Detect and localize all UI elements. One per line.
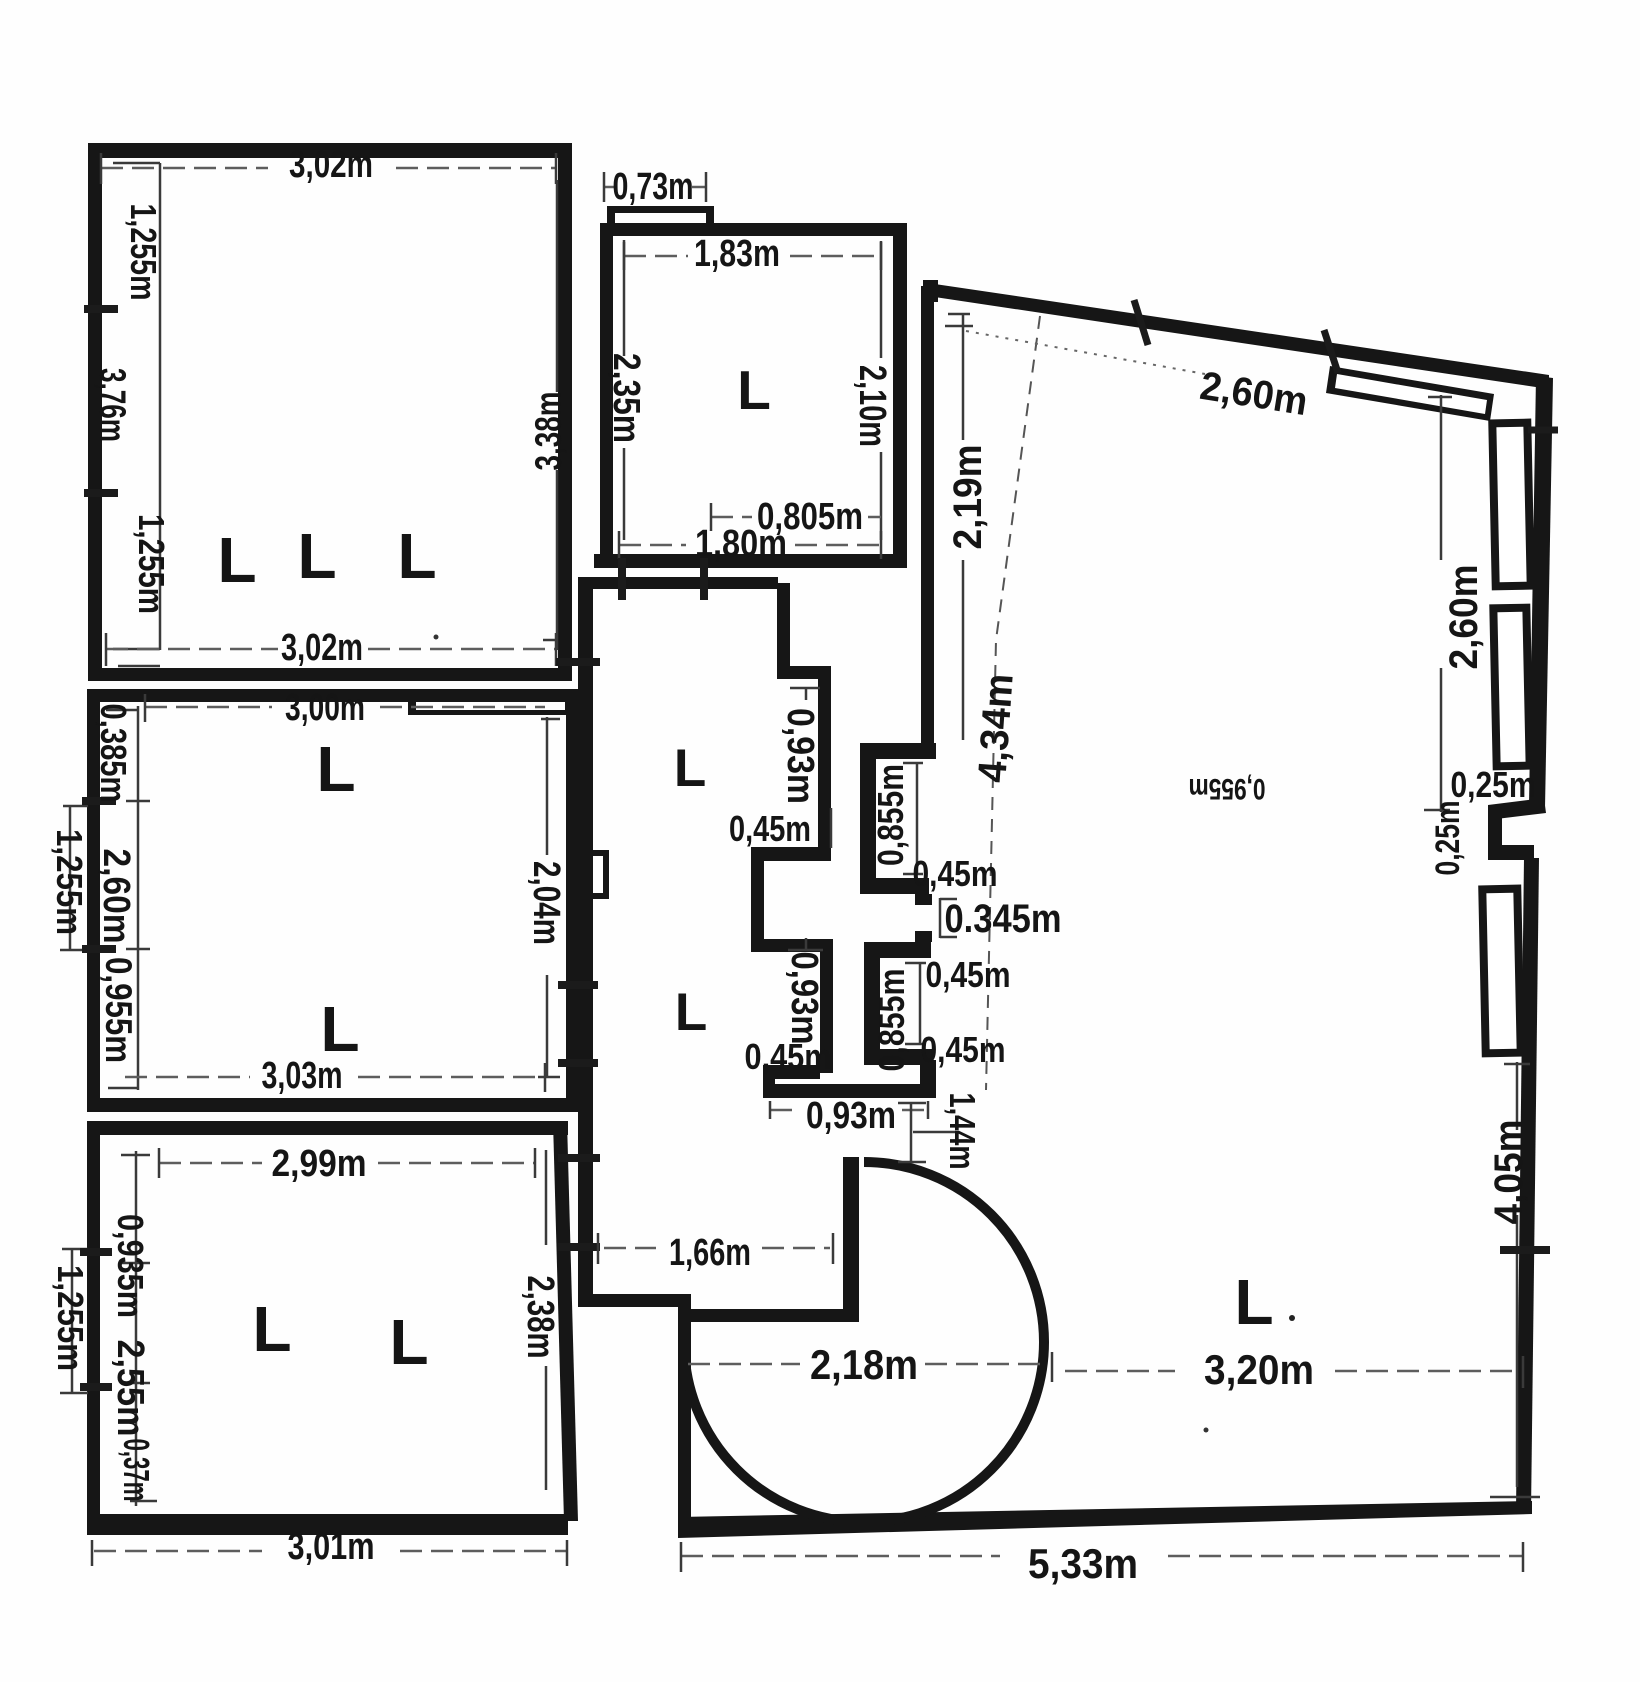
svg-text:0,955m: 0,955m xyxy=(98,957,139,1063)
svg-text:1,44m: 1,44m xyxy=(942,1093,983,1170)
svg-text:L: L xyxy=(320,993,359,1065)
svg-text:2,35m: 2,35m xyxy=(605,353,647,443)
svg-text:L: L xyxy=(297,520,336,592)
svg-text:2,19m: 2,19m xyxy=(946,445,990,550)
svg-text:L: L xyxy=(397,520,436,592)
svg-text:3,02m: 3,02m xyxy=(289,144,373,186)
svg-text:3,20m: 3,20m xyxy=(1204,1346,1314,1393)
svg-text:0,45m: 0,45m xyxy=(913,853,998,894)
svg-text:1,255m: 1,255m xyxy=(49,829,90,935)
svg-text:3,02m: 3,02m xyxy=(281,627,363,669)
svg-text:L: L xyxy=(217,524,256,596)
svg-text:0,385m: 0,385m xyxy=(93,704,134,803)
svg-text:0,855m: 0,855m xyxy=(871,969,912,1072)
svg-text:L: L xyxy=(674,739,706,798)
svg-text:1,255m: 1,255m xyxy=(131,514,172,614)
svg-text:3,76m: 3,76m xyxy=(92,368,133,442)
svg-text:0,93m: 0,93m xyxy=(783,952,825,1045)
svg-text:0,45m: 0,45m xyxy=(729,808,811,849)
svg-text:0,955m: 0,955m xyxy=(1189,772,1266,805)
svg-text:0,935m: 0,935m xyxy=(110,1214,151,1318)
svg-text:0,93m: 0,93m xyxy=(806,1095,896,1137)
svg-text:2,18m: 2,18m xyxy=(810,1341,918,1388)
svg-text:0,73m: 0,73m xyxy=(613,166,694,208)
svg-text:0,45m: 0,45m xyxy=(745,1036,832,1077)
svg-text:2,10m: 2,10m xyxy=(851,365,893,447)
svg-text:2,38m: 2,38m xyxy=(519,1276,561,1359)
svg-text:5,33m: 5,33m xyxy=(1028,1540,1138,1587)
svg-text:0,45m: 0,45m xyxy=(926,954,1011,995)
svg-text:L: L xyxy=(252,1293,291,1365)
svg-text:2,99m: 2,99m xyxy=(272,1143,367,1185)
svg-text:L: L xyxy=(389,1306,428,1378)
svg-text:2,60m: 2,60m xyxy=(95,849,137,944)
svg-text:4,05m: 4,05m xyxy=(1487,1120,1531,1225)
svg-text:2,04m: 2,04m xyxy=(525,861,567,945)
svg-text:1,255m: 1,255m xyxy=(50,1265,91,1371)
svg-text:1,80m: 1,80m xyxy=(695,523,787,565)
svg-text:1,255m: 1,255m xyxy=(123,204,164,301)
svg-text:0.345m: 0.345m xyxy=(945,897,1062,941)
svg-text:3,38m: 3,38m xyxy=(528,392,569,471)
svg-text:1,66m: 1,66m xyxy=(669,1232,751,1274)
svg-text:0,855m: 0,855m xyxy=(870,764,911,866)
svg-text:0,45m: 0,45m xyxy=(921,1029,1006,1070)
svg-text:0,25m: 0,25m xyxy=(1429,801,1467,876)
svg-text:0,93m: 0,93m xyxy=(779,708,821,804)
svg-text:1,83m: 1,83m xyxy=(694,233,780,275)
svg-text:2,60m: 2,60m xyxy=(1442,565,1486,670)
svg-text:L: L xyxy=(737,359,771,421)
svg-text:4,34m: 4,34m xyxy=(970,672,1021,784)
svg-text:L: L xyxy=(675,983,707,1042)
svg-text:3,00m: 3,00m xyxy=(285,687,365,729)
svg-text:0,25m: 0,25m xyxy=(1451,764,1536,805)
svg-text:L: L xyxy=(316,733,355,805)
svg-text:2,55m: 2,55m xyxy=(109,1340,151,1437)
svg-text:0,37m: 0,37m xyxy=(116,1439,157,1502)
svg-text:L: L xyxy=(1234,1266,1273,1338)
svg-text:3,01m: 3,01m xyxy=(288,1526,375,1568)
